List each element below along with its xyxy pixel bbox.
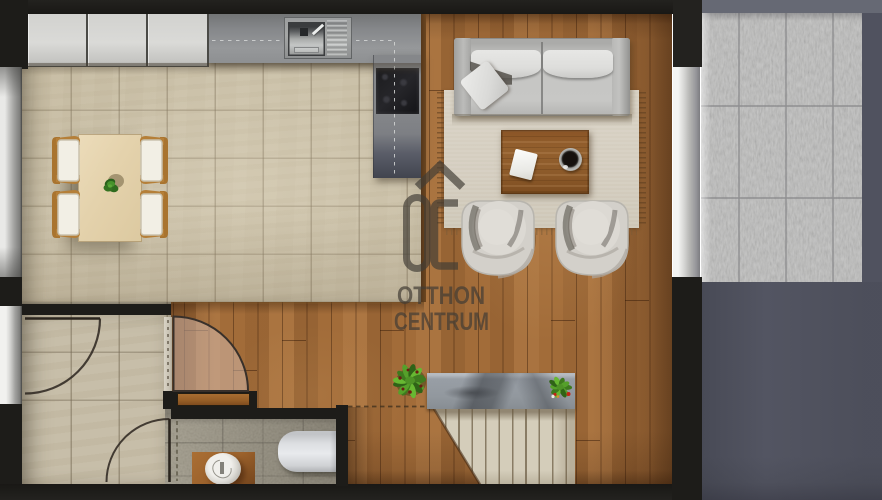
svg-text:OTTHON: OTTHON (397, 282, 485, 310)
svg-text:CENTRUM: CENTRUM (394, 308, 489, 336)
